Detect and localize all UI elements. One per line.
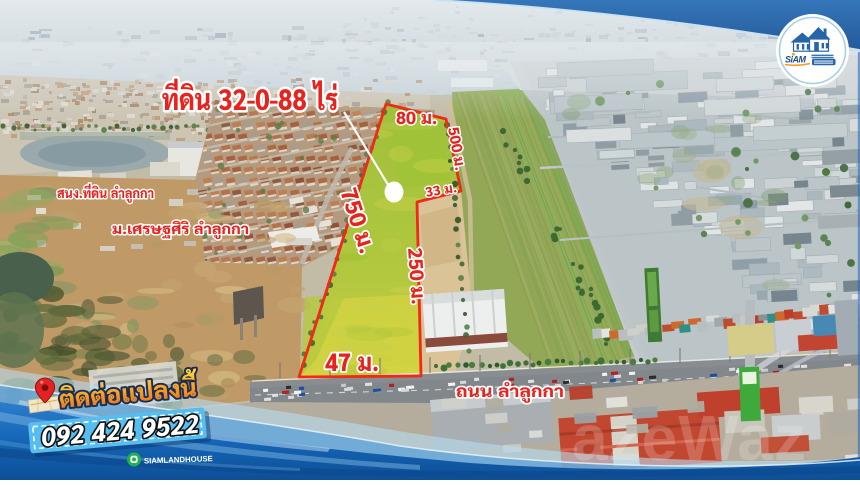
- svg-text:azeWaz: azeWaz: [572, 402, 807, 474]
- svg-text:SiAM: SiAM: [785, 55, 807, 65]
